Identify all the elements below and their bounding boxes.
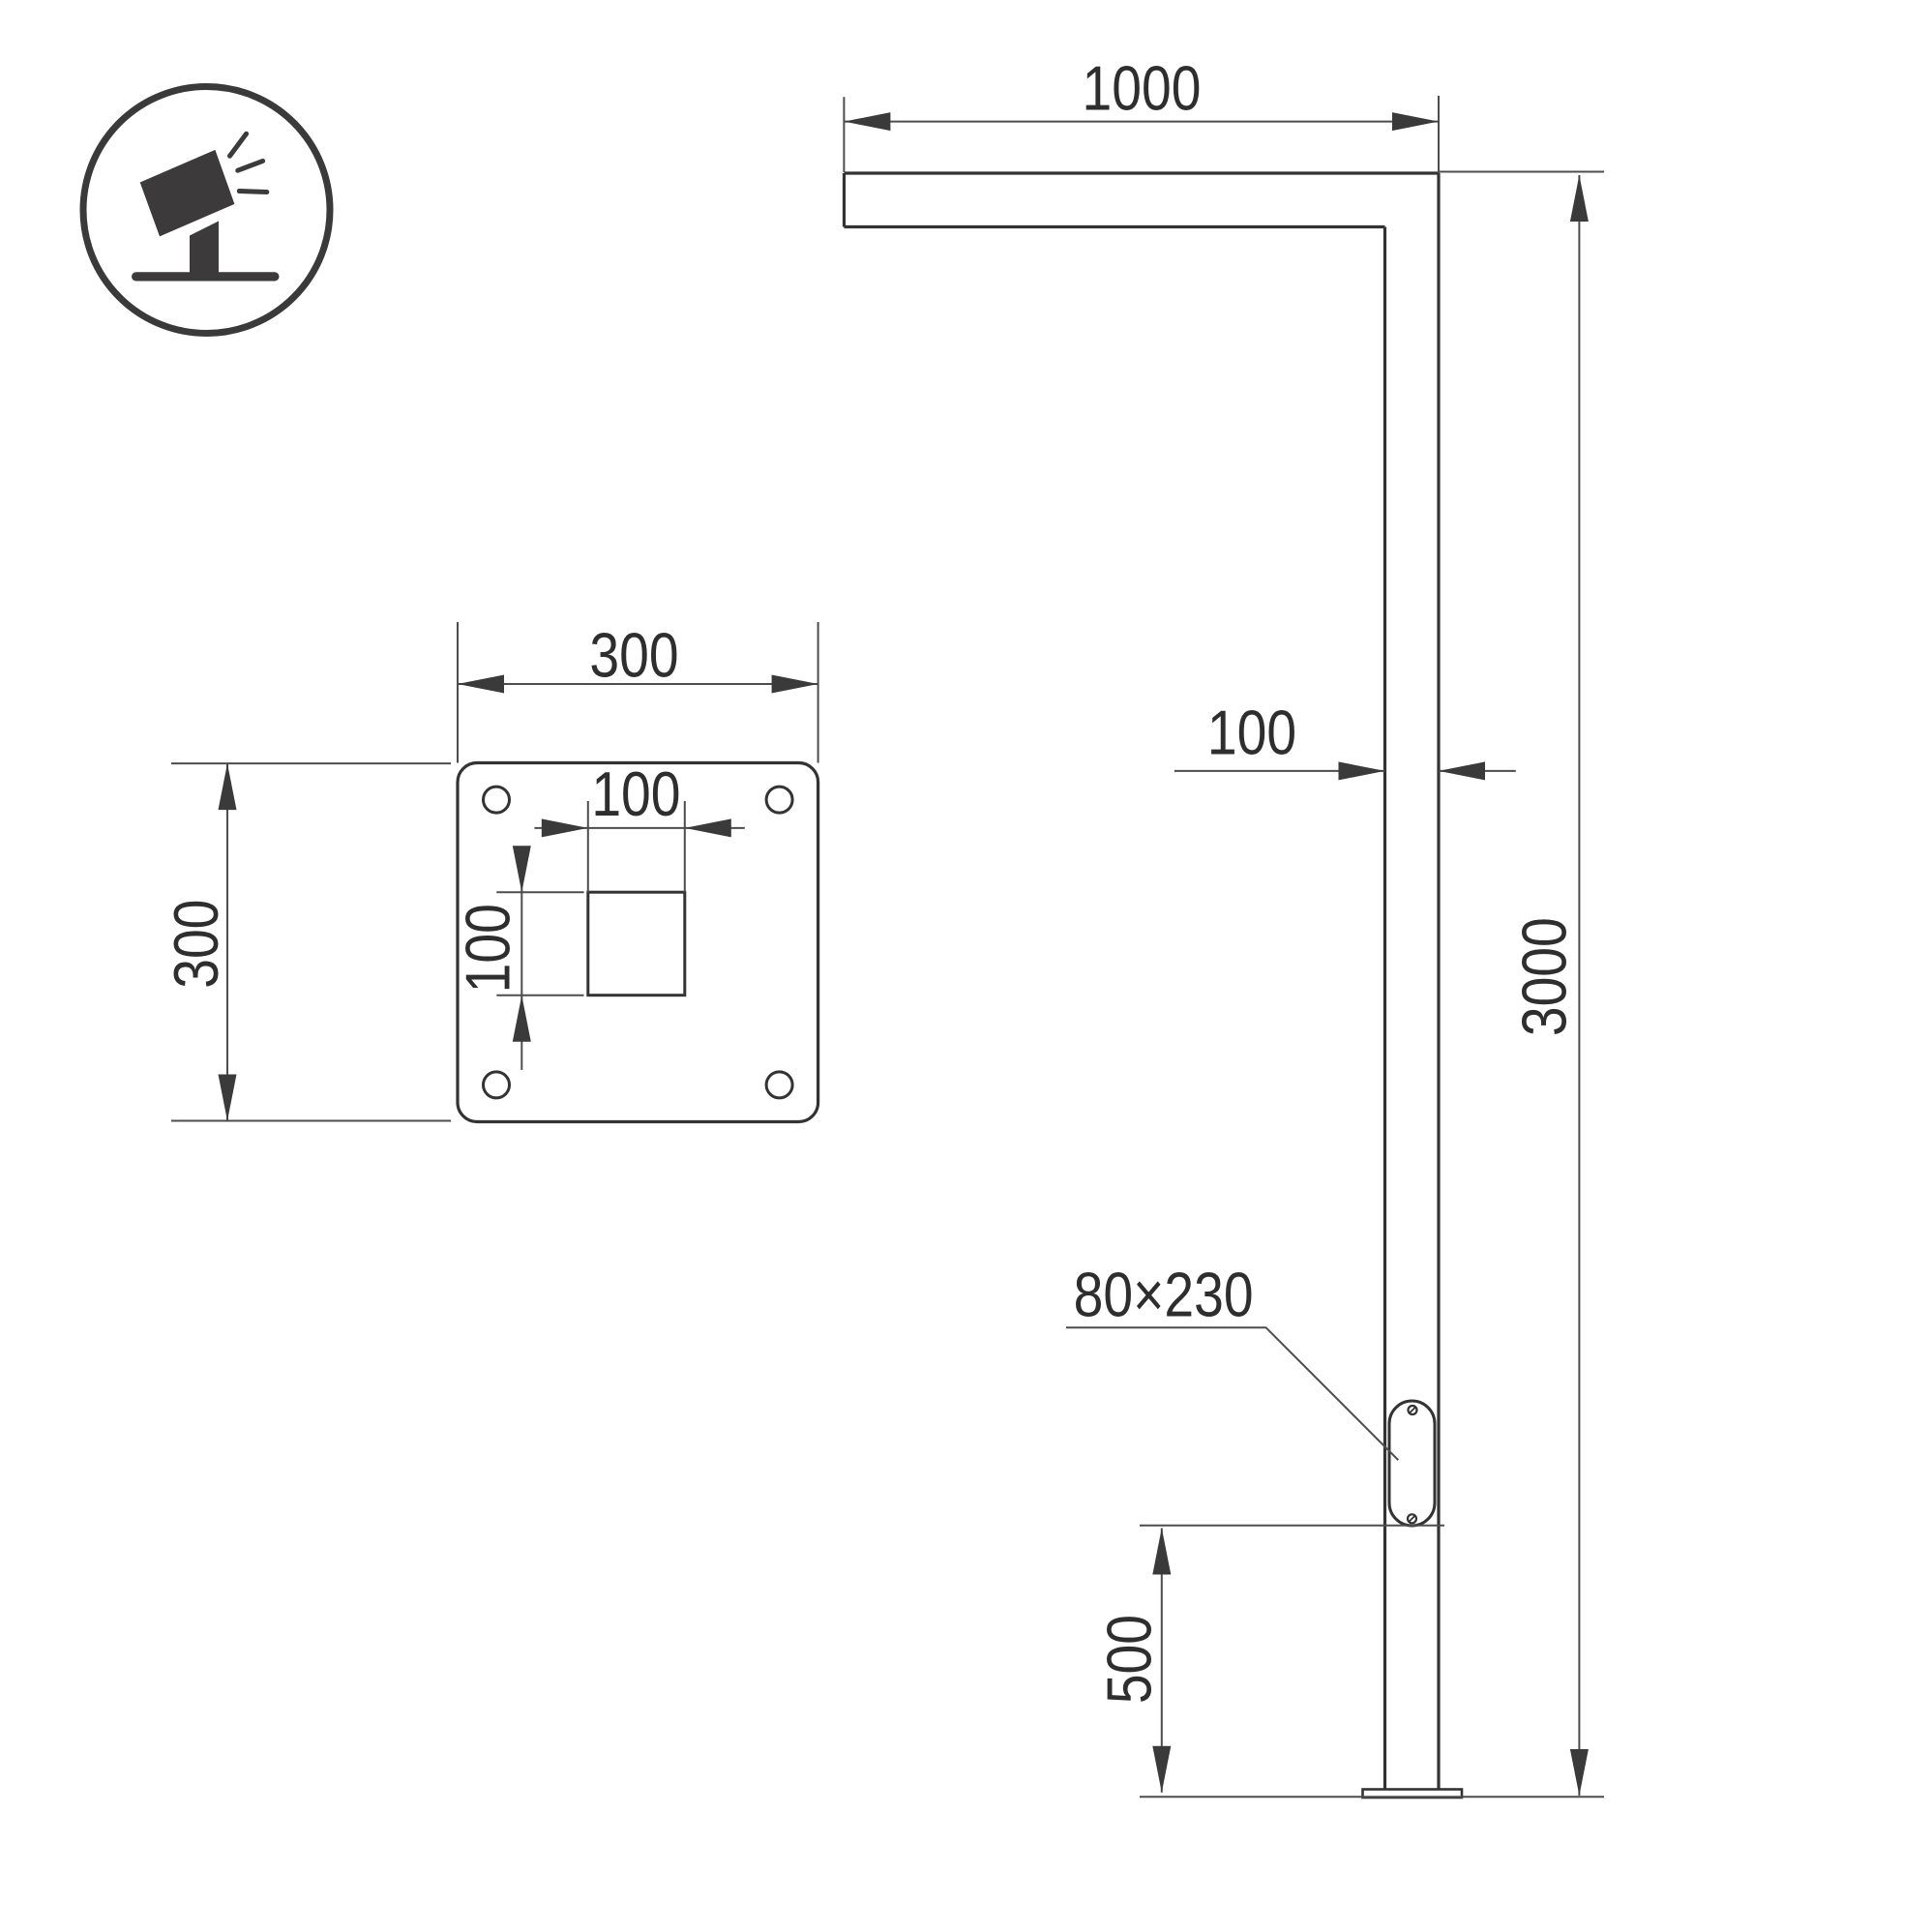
- svg-text:500: 500: [1093, 1615, 1164, 1704]
- svg-text:80×230: 80×230: [1074, 1259, 1254, 1329]
- svg-text:100: 100: [591, 758, 680, 829]
- svg-text:1000: 1000: [1083, 52, 1202, 123]
- svg-text:100: 100: [1207, 697, 1296, 767]
- svg-text:3000: 3000: [1508, 917, 1579, 1036]
- svg-text:100: 100: [452, 904, 522, 993]
- svg-text:300: 300: [161, 900, 231, 989]
- svg-text:300: 300: [589, 619, 678, 690]
